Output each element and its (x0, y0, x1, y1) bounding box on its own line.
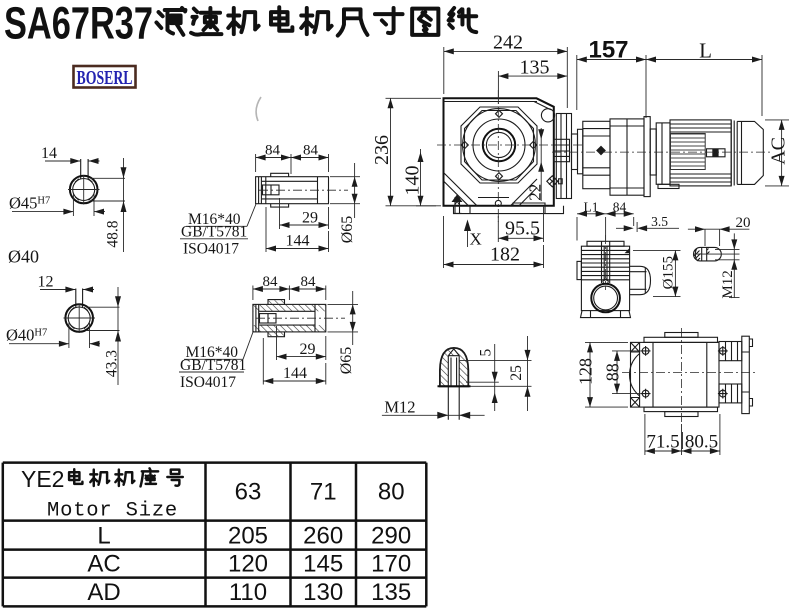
svg-text:63: 63 (235, 479, 262, 506)
svg-text:M12: M12 (720, 270, 736, 298)
svg-text:95.5: 95.5 (505, 218, 540, 240)
svg-text:140: 140 (402, 166, 424, 196)
svg-text:25: 25 (508, 365, 525, 381)
svg-text:12: 12 (38, 274, 54, 291)
svg-text:YE2: YE2 (21, 466, 64, 492)
svg-text:L: L (97, 523, 110, 550)
svg-text:48.8: 48.8 (105, 220, 122, 247)
svg-text:182: 182 (490, 244, 520, 266)
svg-text:5: 5 (477, 348, 494, 356)
svg-text:SA67R37: SA67R37 (4, 0, 153, 49)
svg-text:Ø155: Ø155 (661, 256, 677, 289)
svg-text:3.5: 3.5 (651, 214, 668, 229)
svg-text:130: 130 (303, 579, 343, 606)
svg-text:BOSERL: BOSERL (77, 68, 133, 89)
svg-text:Ø40: Ø40 (8, 247, 39, 267)
svg-text:22: 22 (526, 184, 545, 201)
svg-text:L1: L1 (584, 199, 599, 214)
svg-text:71: 71 (310, 479, 337, 506)
svg-text:Ø65: Ø65 (338, 347, 355, 375)
svg-text:135: 135 (520, 57, 550, 79)
svg-text:144: 144 (286, 233, 310, 250)
svg-text:L: L (699, 39, 712, 63)
svg-text:110: 110 (229, 579, 267, 606)
svg-text:290: 290 (371, 523, 411, 550)
svg-text:M12: M12 (384, 397, 415, 416)
svg-text:144: 144 (283, 365, 307, 382)
svg-text:GB/T5781: GB/T5781 (181, 224, 247, 241)
svg-text:242: 242 (493, 32, 523, 54)
svg-text:84: 84 (301, 274, 317, 290)
svg-text:29: 29 (302, 210, 318, 227)
svg-text:260: 260 (303, 523, 343, 550)
svg-text:145: 145 (303, 551, 343, 578)
svg-text:135: 135 (371, 579, 411, 606)
svg-text:157: 157 (588, 37, 628, 64)
svg-text:ISO4017: ISO4017 (180, 374, 236, 391)
svg-text:120: 120 (228, 551, 268, 578)
svg-text:84: 84 (613, 199, 627, 214)
svg-text:84: 84 (303, 143, 319, 159)
svg-text:14: 14 (41, 145, 57, 162)
svg-text:Motor Size: Motor Size (47, 500, 178, 523)
svg-text:AC: AC (87, 551, 120, 578)
svg-text:29: 29 (300, 341, 316, 358)
svg-text:170: 170 (371, 551, 411, 578)
svg-text:X: X (470, 230, 482, 249)
svg-text:88: 88 (603, 363, 623, 381)
svg-text:236: 236 (371, 135, 393, 165)
svg-text:80.5: 80.5 (685, 432, 718, 453)
svg-text:43.3: 43.3 (104, 350, 121, 377)
svg-text:GB/T5781: GB/T5781 (180, 357, 246, 374)
svg-text:80: 80 (378, 479, 405, 506)
svg-text:205: 205 (228, 523, 268, 550)
svg-text:128: 128 (576, 358, 596, 385)
svg-text:71.5: 71.5 (646, 432, 679, 453)
svg-text:84: 84 (265, 143, 281, 159)
svg-text:84: 84 (263, 274, 279, 290)
svg-text:20: 20 (736, 215, 751, 231)
svg-text:AC: AC (768, 137, 790, 165)
svg-text:Ø65: Ø65 (339, 216, 356, 244)
svg-text:AD: AD (87, 579, 120, 606)
svg-text:ISO4017: ISO4017 (183, 241, 239, 258)
